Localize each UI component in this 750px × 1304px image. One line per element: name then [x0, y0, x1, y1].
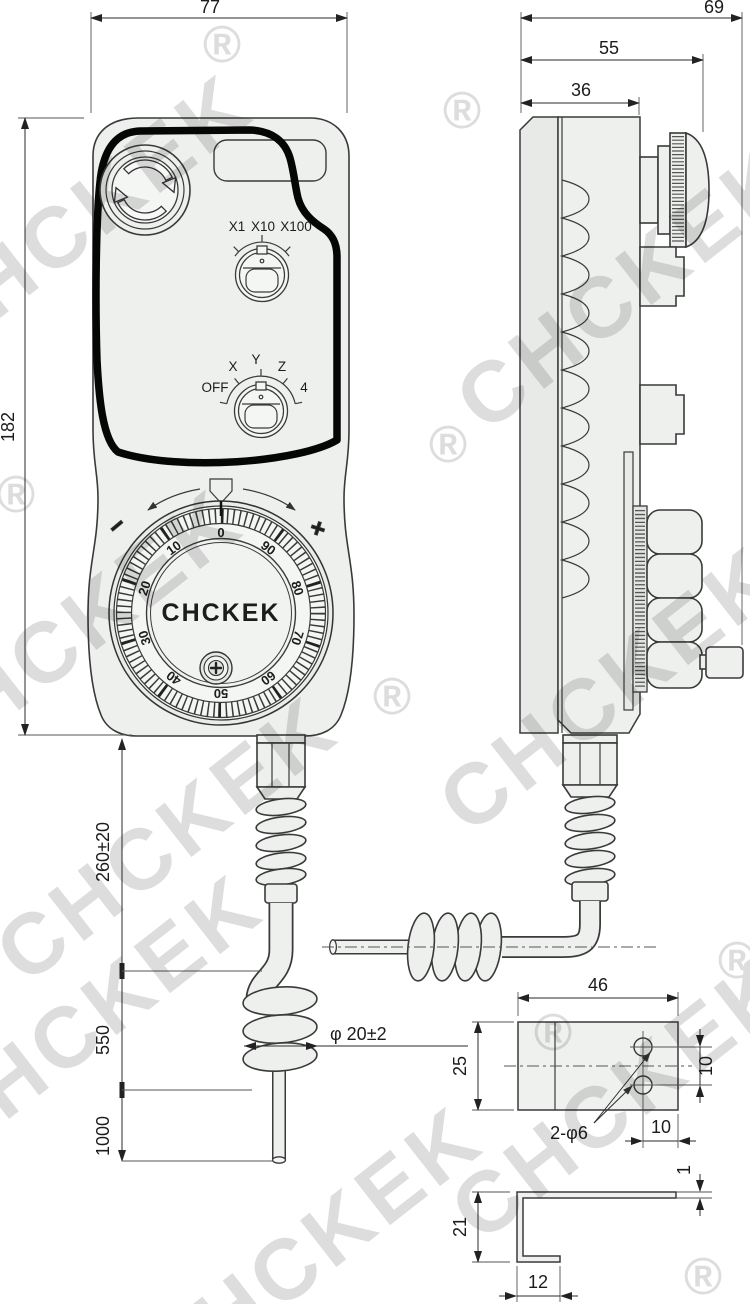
- dim-bracket-height: 25: [450, 1056, 470, 1076]
- dim-side-body: 36: [571, 80, 591, 100]
- technical-drawing-page: X1 X10 X100 OFF X Y Z 4: [0, 0, 750, 1304]
- axis-x-label: X: [228, 359, 237, 374]
- axis-y-label: Y: [251, 352, 260, 367]
- dim-front-width: 77: [200, 0, 220, 17]
- axis-knob-side: [640, 385, 684, 444]
- watermark-reg-icon: ®: [0, 466, 35, 524]
- axis-off-label: OFF: [202, 380, 229, 395]
- multiplier-x10-label: X10: [251, 219, 275, 234]
- dim-front-height: 182: [0, 412, 18, 442]
- multiplier-x100-label: X100: [280, 219, 312, 234]
- watermark-reg-icon: ®: [429, 416, 467, 474]
- dim-coil-diameter: φ 20±2: [330, 1024, 387, 1044]
- dial-number-50: 50: [214, 686, 228, 701]
- dim-side-total: 69: [704, 0, 724, 17]
- axis-z-label: Z: [278, 359, 286, 374]
- watermark-reg-icon: ®: [534, 1004, 572, 1062]
- mpg-handwheel-drawing: X1 X10 X100 OFF X Y Z 4: [0, 0, 750, 1304]
- axis-knob-pointer: [256, 382, 266, 390]
- dim-cable-tail: 1000: [93, 1116, 113, 1156]
- dim-side-estop: 55: [599, 38, 619, 58]
- watermark-reg-icon: ®: [718, 932, 750, 990]
- dim-bracket-width: 46: [588, 975, 608, 995]
- watermark-reg-icon: ®: [203, 16, 241, 74]
- axis-4-label: 4: [300, 380, 308, 395]
- multiplier-x1-label: X1: [229, 219, 246, 234]
- watermark-brand: CHCKEK: [123, 1087, 500, 1304]
- multiplier-knob-pointer: [257, 246, 267, 254]
- dim-bracket-thickness: 1: [674, 1165, 694, 1175]
- crank-knob: [200, 652, 232, 684]
- watermark-reg-icon: ®: [373, 668, 411, 726]
- coiled-cable-front: [242, 984, 318, 1073]
- watermark-reg-icon: ®: [684, 1248, 722, 1304]
- watermark-reg-icon: ®: [443, 82, 481, 140]
- cable-end: [273, 1157, 286, 1163]
- dim-bracket-foot: 12: [528, 1272, 548, 1292]
